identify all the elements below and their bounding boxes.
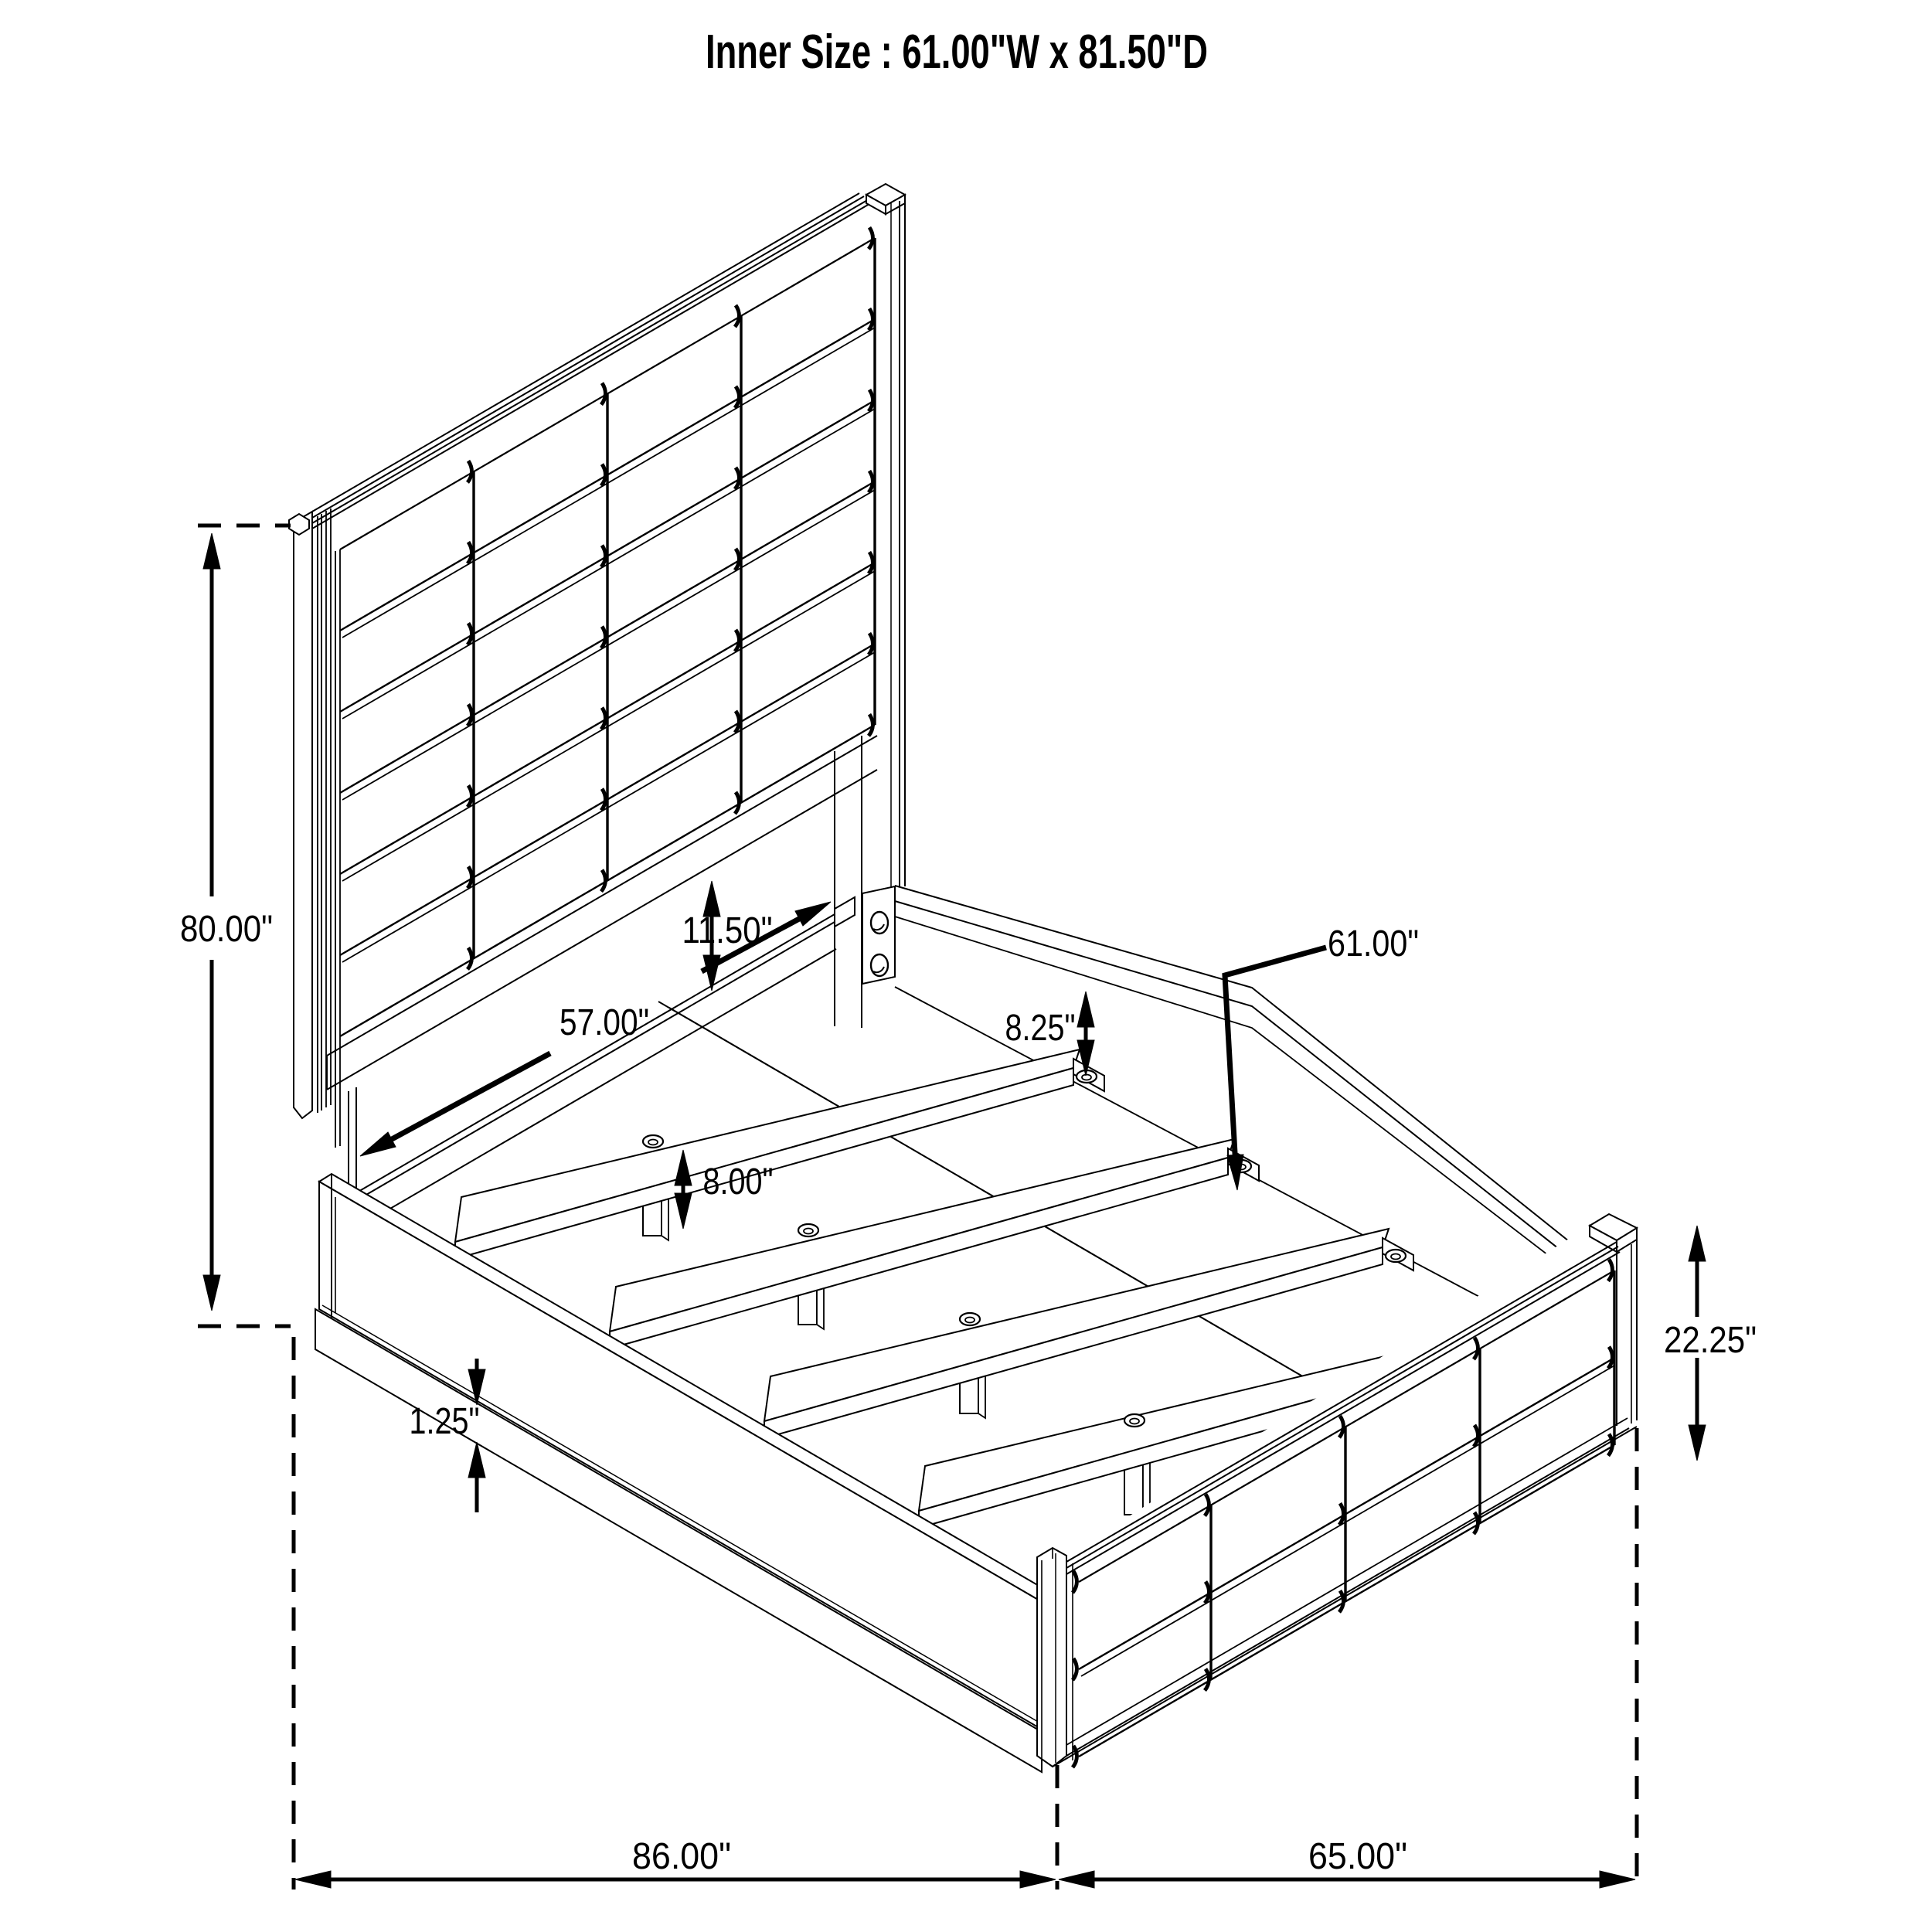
svg-text:61.00": 61.00" bbox=[1328, 923, 1419, 964]
svg-text:57.00": 57.00" bbox=[560, 1002, 649, 1043]
svg-text:86.00": 86.00" bbox=[632, 1836, 731, 1877]
svg-text:22.25": 22.25" bbox=[1664, 1320, 1757, 1361]
svg-text:65.00": 65.00" bbox=[1308, 1836, 1407, 1877]
svg-text:8.00": 8.00" bbox=[703, 1162, 774, 1202]
svg-text:8.25": 8.25" bbox=[1005, 1008, 1076, 1049]
svg-text:11.50": 11.50" bbox=[682, 910, 773, 951]
svg-text:Inner Size : 61.00"W x 81.50"D: Inner Size : 61.00"W x 81.50"D bbox=[706, 26, 1208, 79]
svg-text:80.00": 80.00" bbox=[180, 909, 273, 950]
svg-text:1.25": 1.25" bbox=[410, 1401, 480, 1442]
